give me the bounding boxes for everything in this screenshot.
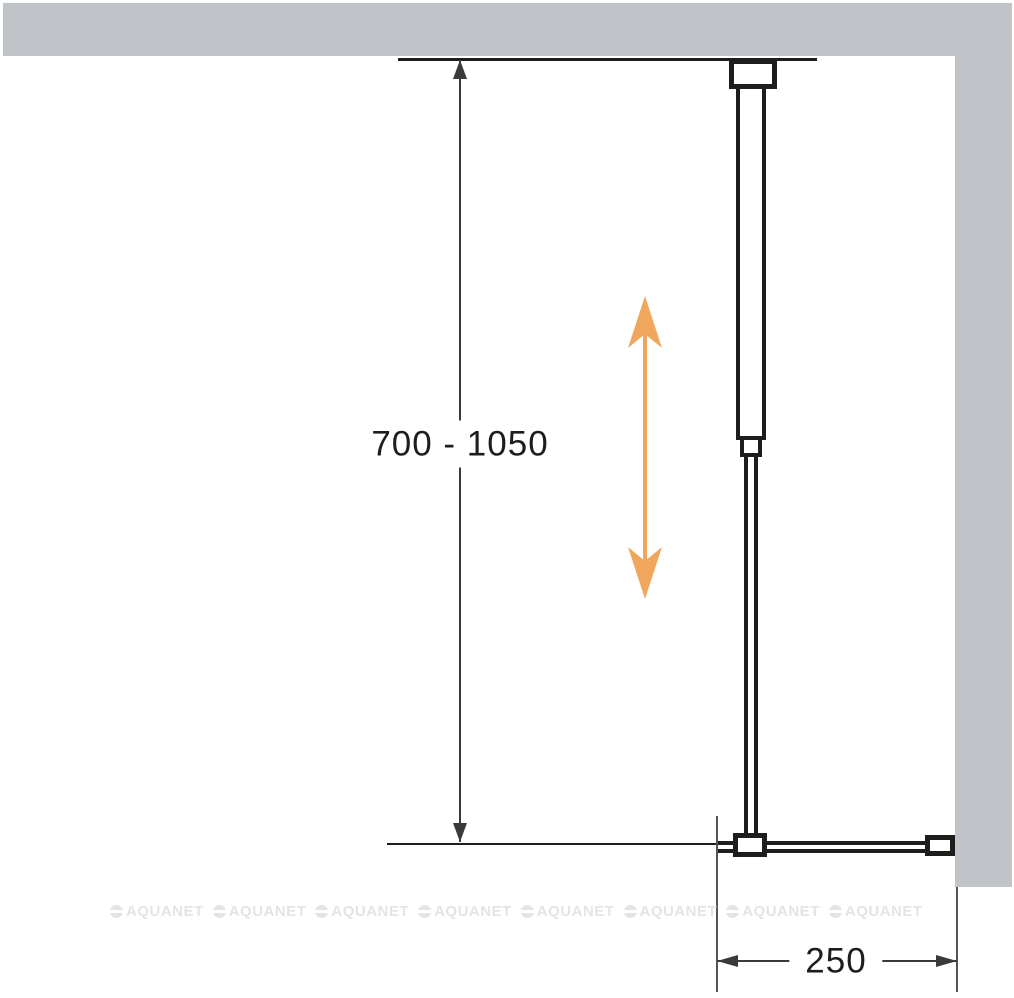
- watermark-item: AQUANET: [110, 904, 204, 919]
- watermark-label: AQUANET: [742, 904, 820, 919]
- right-arrow-icon: [936, 955, 957, 967]
- watermark-label: AQUANET: [845, 904, 923, 919]
- aquanet-logo-icon: [110, 905, 123, 918]
- ceiling-bracket: [729, 59, 777, 89]
- extension-line-right: [956, 887, 958, 992]
- watermark-item: AQUANET: [521, 904, 615, 919]
- side-wall-band: [955, 56, 1012, 887]
- watermark-item: AQUANET: [213, 904, 307, 919]
- glass-panel-edge-line: [387, 843, 717, 845]
- width-dimension-label: 250: [789, 940, 882, 983]
- watermark-label: AQUANET: [434, 904, 512, 919]
- watermark-label: AQUANET: [229, 904, 307, 919]
- telescopic-collar: [740, 440, 762, 457]
- watermark-label: AQUANET: [537, 904, 615, 919]
- adjustment-double-arrow-icon: [628, 296, 662, 599]
- watermark-item: AQUANET: [418, 904, 512, 919]
- aquanet-logo-icon: [213, 905, 226, 918]
- telescopic-outer-tube: [736, 87, 766, 440]
- watermark-item: AQUANET: [315, 904, 409, 919]
- aquanet-logo-icon: [521, 905, 534, 918]
- watermark-item: AQUANET: [726, 904, 820, 919]
- down-arrow-icon: [453, 823, 467, 842]
- aquanet-logo-icon: [624, 905, 637, 918]
- wall-mount-bracket: [925, 835, 955, 856]
- watermark-item: AQUANET: [829, 904, 923, 919]
- ceiling-wall-band: [3, 3, 1012, 56]
- glass-clamp-bracket: [733, 833, 767, 857]
- watermark-label: AQUANET: [331, 904, 409, 919]
- height-dimension-label: 700 - 1050: [357, 421, 562, 468]
- watermark-label: AQUANET: [640, 904, 718, 919]
- aquanet-logo-icon: [315, 905, 328, 918]
- watermark-label: AQUANET: [126, 904, 204, 919]
- up-arrow-icon: [453, 60, 467, 79]
- telescopic-inner-rod: [744, 457, 758, 835]
- aquanet-logo-icon: [829, 905, 842, 918]
- aquanet-logo-icon: [418, 905, 431, 918]
- watermark-item: AQUANET: [624, 904, 718, 919]
- shower-screen-installation-diagram: 700 - 1050 250 AQUANETAQUANETAQUANETAQUA…: [0, 0, 1014, 998]
- left-arrow-icon: [717, 955, 738, 967]
- aquanet-logo-icon: [726, 905, 739, 918]
